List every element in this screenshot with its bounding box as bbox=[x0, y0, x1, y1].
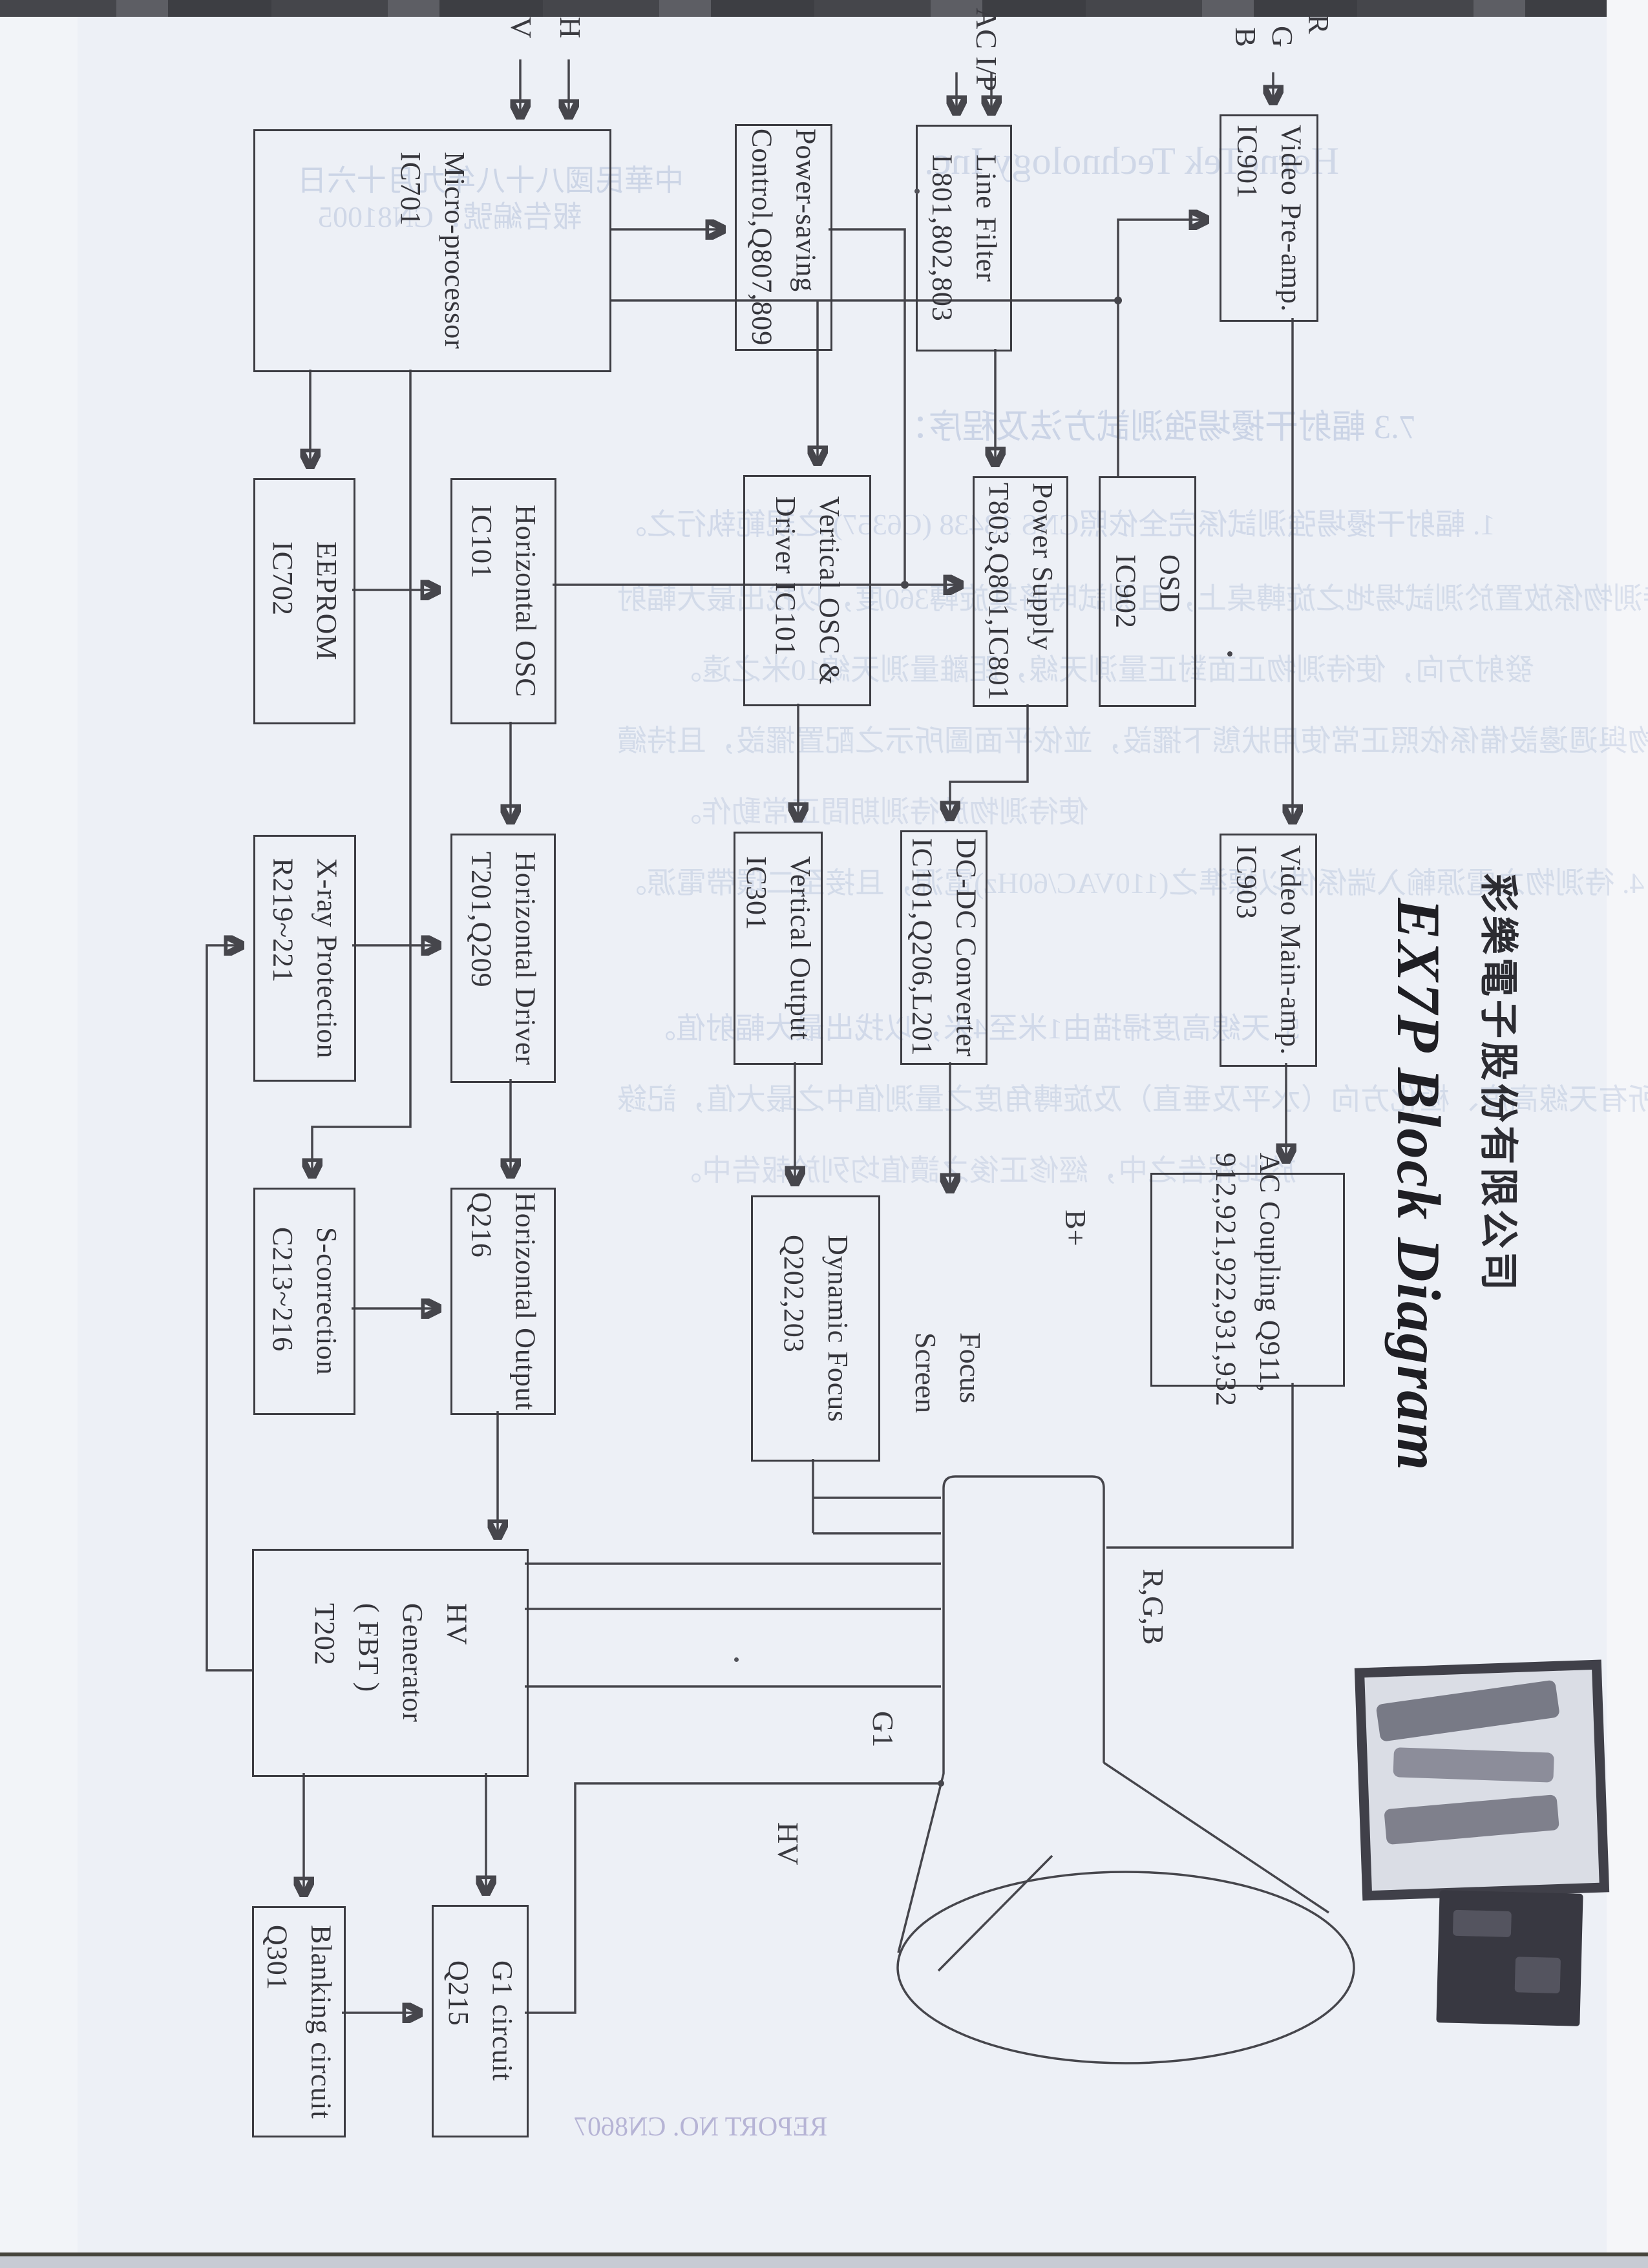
block-label: Blanking circuitQ301 bbox=[255, 1925, 343, 2119]
diagram-title: EX7P Block Diagram bbox=[1383, 898, 1454, 1472]
block-label: Video Pre-amp.IC901 bbox=[1225, 125, 1313, 312]
port-label-v: V bbox=[499, 17, 544, 38]
block-label: AC Coupling Q911,912,921,922,931,932 bbox=[1203, 1153, 1291, 1407]
scan-speck bbox=[734, 1657, 739, 1662]
block-video-preamp: Video Pre-amp.IC901 bbox=[1220, 114, 1318, 322]
block-label: Horizontal DriverT201,Q209 bbox=[459, 852, 547, 1066]
port-label-rgb: R,G,B bbox=[1131, 1569, 1176, 1645]
crt-drawing bbox=[898, 1476, 1354, 2063]
wire-dynamicfocus-to-crt bbox=[813, 1459, 941, 1533]
port-label-g1: G1 bbox=[861, 1711, 905, 1747]
block-g1-circuit: G1 circuitQ215 bbox=[432, 1905, 529, 2137]
seal-stamp-large bbox=[1355, 1659, 1609, 1900]
block-xray-protection: X-ray ProtectionR219~221 bbox=[253, 835, 356, 1082]
block-label: Vertical OSC &Driver IC101 bbox=[763, 496, 851, 686]
block-label: G1 circuitQ215 bbox=[436, 1960, 524, 2081]
block-horizontal-osc: Horizontal OSCIC101 bbox=[450, 478, 556, 724]
wire-hvgen-to-crt bbox=[525, 1564, 941, 1686]
block-label: OSDIC902 bbox=[1103, 554, 1191, 629]
wire-powersupply-to-dcdc bbox=[950, 704, 1028, 819]
junction-dot bbox=[901, 581, 909, 589]
port-label-h: H bbox=[548, 17, 593, 38]
block-power-saving: Power-savingControl,Q807,809 bbox=[735, 124, 832, 351]
junction-dot bbox=[1227, 651, 1232, 656]
block-dcdc-converter: DC-DC ConverterIC101,Q206,L201 bbox=[900, 830, 988, 1065]
block-micro-processor: Micro-processorIC701 bbox=[253, 129, 611, 372]
seal-stamp-small bbox=[1436, 1890, 1583, 2026]
block-label: Line FilterL801,802,803 bbox=[920, 154, 1008, 322]
port-label-hv: HV bbox=[766, 1822, 810, 1865]
port-label-r: R bbox=[1296, 14, 1341, 34]
block-dynamic-focus: Dynamic FocusQ202,203 bbox=[751, 1195, 880, 1462]
block-label: Micro-processorIC701 bbox=[388, 152, 476, 350]
block-label: Horizontal OutputQ216 bbox=[459, 1192, 547, 1411]
port-label-b-plus: B+ bbox=[1053, 1210, 1098, 1246]
block-line-filter: Line FilterL801,802,803 bbox=[916, 125, 1012, 352]
block-label: Power SupplyT803,Q801,IC801 bbox=[977, 483, 1064, 701]
block-label: Dynamic FocusQ202,203 bbox=[772, 1235, 860, 1422]
input-wires bbox=[520, 59, 1273, 118]
wire-g1circuit-to-crt bbox=[525, 1783, 941, 2013]
block-label: Horizontal OSCIC101 bbox=[460, 505, 547, 698]
crt-gun-line bbox=[938, 1856, 1052, 1971]
scanned-page: 中華民國八十八年九月十六日 報告編號：CN81005 HorneTek Tech… bbox=[0, 0, 1648, 2268]
wire-osd-to-videopreamp bbox=[1118, 220, 1207, 476]
wire-accoupling-to-crt bbox=[1106, 1383, 1293, 1548]
block-label: S-correctionC213~216 bbox=[260, 1227, 348, 1375]
block-label: DC-DC ConverterIC101,Q206,L201 bbox=[900, 838, 988, 1057]
block-label: Vertical OutputIC301 bbox=[734, 856, 822, 1040]
port-label-ac-input: AC I/P bbox=[964, 8, 1009, 91]
block-label: Video Main-amp.IC903 bbox=[1224, 845, 1312, 1055]
block-vertical-output: Vertical OutputIC301 bbox=[734, 832, 823, 1065]
block-label: Power-savingControl,Q807,809 bbox=[739, 129, 827, 346]
block-horizontal-output: Horizontal OutputQ216 bbox=[450, 1188, 556, 1415]
block-eeprom: EEPROMIC702 bbox=[253, 478, 355, 724]
crt-neck bbox=[944, 1476, 1104, 1774]
port-label-focus-screen: FocusScreen bbox=[903, 1332, 993, 1413]
crt-funnel bbox=[898, 1763, 1329, 1953]
block-s-correction: S-correctionC213~216 bbox=[253, 1188, 355, 1415]
block-ac-coupling: AC Coupling Q911,912,921,922,931,932 bbox=[1150, 1173, 1345, 1387]
block-osd: OSDIC902 bbox=[1099, 476, 1196, 707]
block-hv-generator-fbt: HVGenerator( FBT )T202 bbox=[252, 1549, 529, 1777]
block-label: X-ray ProtectionR219~221 bbox=[260, 858, 348, 1058]
block-vertical-osc-driver: Vertical OSC &Driver IC101 bbox=[743, 475, 871, 706]
block-blanking-circuit: Blanking circuitQ301 bbox=[252, 1906, 346, 2137]
block-label: HVGenerator( FBT )T202 bbox=[302, 1603, 479, 1723]
block-video-main-amp: Video Main-amp.IC903 bbox=[1220, 834, 1317, 1067]
company-name: 彩樂電子股份有限公司 bbox=[1474, 874, 1530, 1294]
crt-screen-face bbox=[898, 1872, 1354, 2063]
block-label: EEPROMIC702 bbox=[260, 541, 348, 660]
block-power-supply: Power SupplyT803,Q801,IC801 bbox=[973, 476, 1068, 707]
block-horizontal-driver: Horizontal DriverT201,Q209 bbox=[450, 834, 556, 1083]
wire-hvgen-to-xray bbox=[207, 945, 253, 1670]
junction-dot bbox=[1114, 297, 1122, 304]
scan-speck bbox=[914, 189, 920, 194]
